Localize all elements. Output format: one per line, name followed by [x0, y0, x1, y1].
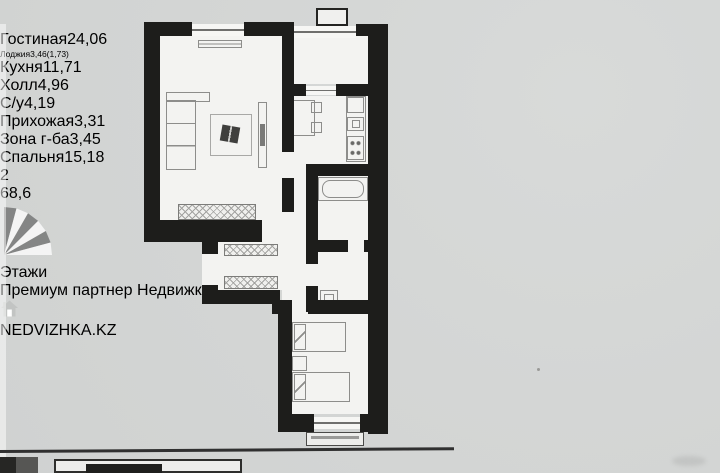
chair — [311, 102, 322, 113]
fridge — [347, 97, 364, 113]
tv — [260, 124, 265, 146]
window-loggia-kitchen — [306, 86, 336, 95]
pillow — [294, 374, 306, 400]
page-edge — [0, 24, 6, 473]
pillow — [294, 324, 306, 350]
wall-segment — [364, 240, 372, 252]
coffee-table — [220, 125, 241, 144]
wall-segment — [144, 22, 192, 36]
partial-plan-outline — [54, 459, 242, 473]
balcony-ledge — [306, 432, 364, 446]
sofa — [166, 100, 196, 170]
bathtub-inner — [322, 180, 364, 198]
wardrobe-entry-bottom — [224, 276, 278, 289]
wall-segment — [336, 84, 370, 96]
floorplan-photo: Гостиная24,06 Лоджия3,46(1,73) Кухня11,7… — [0, 0, 720, 473]
wall-segment — [144, 22, 160, 242]
wall-segment — [202, 285, 218, 304]
chair — [311, 122, 322, 133]
paper-speck — [537, 368, 540, 371]
window-living — [192, 24, 244, 36]
wall-segment — [144, 220, 262, 242]
wardrobe-entry-top — [224, 244, 278, 256]
stove — [347, 136, 364, 160]
window-bedroom — [314, 417, 360, 429]
wall-segment — [308, 300, 372, 314]
wall-segment — [368, 24, 388, 434]
wall-segment — [360, 414, 388, 432]
wall-segment — [282, 22, 294, 152]
doorway-living-hall — [282, 152, 294, 178]
room-fill-loggia — [294, 36, 368, 84]
wall-segment — [272, 300, 292, 314]
paper-smudge — [672, 456, 706, 466]
wall-segment — [282, 178, 294, 212]
closet-living — [178, 204, 256, 220]
nightstand — [292, 356, 307, 371]
radiator-living — [198, 40, 242, 48]
sink-bowl — [352, 120, 360, 128]
entry-door-gap — [202, 254, 218, 285]
wall-segment — [218, 290, 280, 304]
wall-segment — [202, 242, 218, 254]
sofa-chaise — [166, 92, 210, 102]
corridor-fill — [282, 242, 306, 300]
window-loggia — [294, 26, 356, 38]
wall-segment — [294, 84, 306, 96]
page-divider-line — [0, 447, 454, 453]
passage-fill — [294, 164, 306, 192]
partial-plan-blob — [0, 457, 38, 473]
etazhi-fan-icon — [0, 203, 56, 259]
loggia-bump — [316, 8, 348, 26]
wall-segment — [306, 240, 348, 252]
doorway-bath — [348, 240, 364, 252]
wall-segment — [278, 414, 314, 432]
doorway-wardrobe — [306, 264, 318, 286]
